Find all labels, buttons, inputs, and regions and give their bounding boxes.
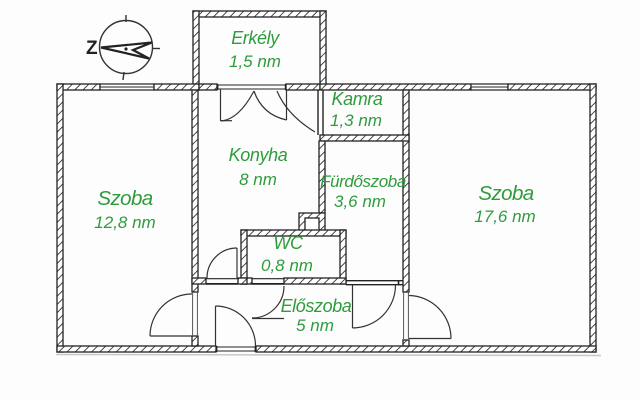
svg-text:12,8 nm: 12,8 nm [94, 213, 155, 232]
svg-text:1,3 nm: 1,3 nm [330, 111, 382, 130]
svg-text:0,8 nm: 0,8 nm [261, 256, 313, 275]
svg-text:Fürdőszoba: Fürdőszoba [320, 172, 406, 191]
svg-text:3,6 nm: 3,6 nm [334, 192, 386, 211]
svg-text:Szoba: Szoba [478, 182, 533, 205]
svg-text:Szoba: Szoba [97, 187, 152, 210]
svg-text:1,5 nm: 1,5 nm [229, 52, 281, 71]
svg-text:Konyha: Konyha [229, 145, 288, 165]
svg-text:17,6 nm: 17,6 nm [474, 207, 535, 226]
svg-text:Kamra: Kamra [331, 89, 382, 109]
svg-text:Z: Z [86, 38, 98, 59]
svg-text:Erkély: Erkély [231, 28, 280, 48]
svg-text:5 nm: 5 nm [296, 316, 334, 335]
svg-text:8 nm: 8 nm [239, 170, 277, 189]
svg-text:Előszoba: Előszoba [281, 296, 352, 316]
svg-text:WC: WC [273, 233, 304, 253]
